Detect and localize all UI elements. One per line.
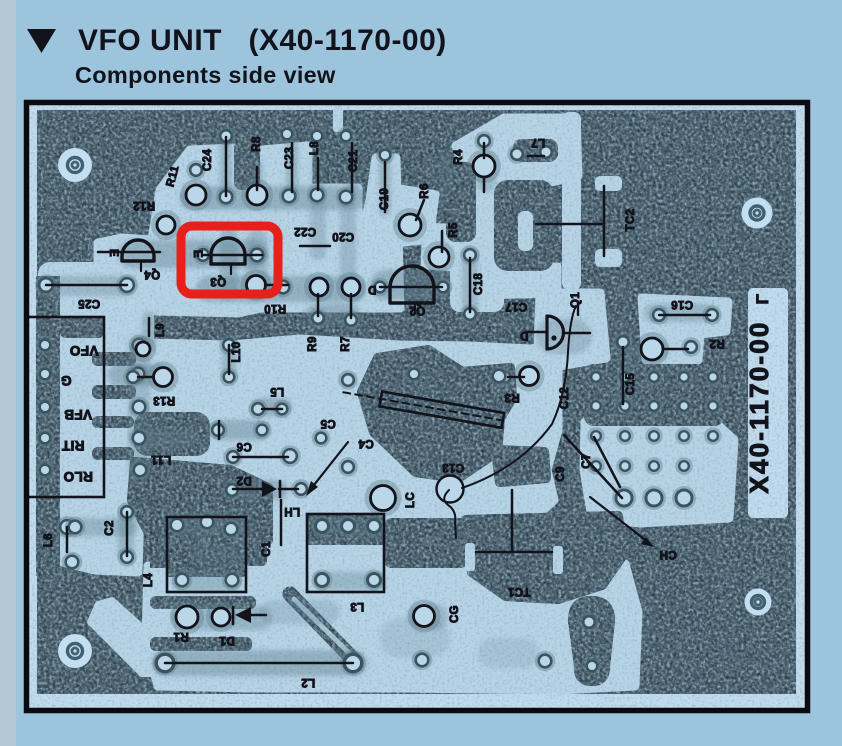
svg-text:C12: C12: [559, 387, 571, 409]
svg-text:VFB: VFB: [64, 407, 92, 422]
svg-text:D: D: [520, 329, 529, 341]
svg-text:R3: R3: [504, 391, 520, 403]
svg-text:R5: R5: [448, 222, 460, 238]
svg-text:Γ: Γ: [753, 294, 772, 305]
svg-text:TC2: TC2: [625, 209, 637, 232]
svg-text:LH: LH: [284, 505, 300, 517]
svg-text:R4: R4: [453, 149, 465, 165]
svg-text:C7: C7: [581, 453, 593, 469]
svg-text:E: E: [107, 249, 119, 257]
svg-text:L3: L3: [350, 600, 364, 612]
svg-text:R10: R10: [264, 302, 286, 314]
svg-text:R9: R9: [307, 336, 319, 352]
svg-text:Q4: Q4: [144, 268, 160, 280]
svg-text:C17: C17: [505, 300, 527, 312]
svg-text:L10: L10: [231, 341, 243, 362]
svg-text:C4: C4: [358, 437, 374, 449]
svg-text:D2: D2: [236, 474, 252, 486]
svg-text:L6: L6: [43, 533, 55, 547]
svg-text:C19: C19: [379, 188, 391, 210]
svg-text:R6: R6: [419, 183, 431, 199]
svg-text:Q2: Q2: [409, 304, 425, 316]
svg-text:G: G: [61, 373, 72, 388]
svg-text:D: D: [368, 283, 377, 295]
svg-text:L7: L7: [531, 136, 545, 148]
svg-text:Q3: Q3: [210, 275, 226, 287]
svg-text:R12: R12: [133, 199, 155, 211]
svg-text:R13: R13: [153, 394, 175, 406]
svg-text:VFO: VFO: [70, 343, 99, 358]
svg-text:R2: R2: [709, 337, 725, 349]
svg-text:C2: C2: [104, 520, 116, 536]
svg-text:C23: C23: [284, 147, 296, 169]
svg-text:C24: C24: [202, 149, 214, 172]
svg-text:C6: C6: [236, 440, 252, 452]
svg-text:L4: L4: [143, 573, 155, 587]
svg-text:R8: R8: [251, 136, 263, 152]
svg-text:C21: C21: [348, 150, 360, 173]
svg-text:L11: L11: [151, 453, 172, 465]
svg-text:L2: L2: [301, 676, 315, 688]
svg-text:C18: C18: [473, 273, 485, 296]
svg-text:C15: C15: [625, 373, 637, 396]
svg-text:C5: C5: [320, 417, 336, 429]
svg-text:VFO UNIT (X40-1170-00): VFO UNIT (X40-1170-00): [78, 24, 447, 57]
svg-text:E: E: [191, 250, 203, 258]
svg-text:RIT: RIT: [61, 438, 84, 453]
svg-text:CH: CH: [659, 548, 676, 560]
svg-text:C16: C16: [671, 298, 693, 310]
svg-text:C1: C1: [261, 541, 273, 557]
svg-text:Components side view: Components side view: [75, 62, 336, 88]
svg-text:C20: C20: [332, 230, 354, 242]
svg-text:X40-1170-00: X40-1170-00: [744, 320, 774, 493]
svg-text:L9: L9: [155, 323, 167, 337]
svg-text:Q1: Q1: [570, 292, 582, 308]
svg-text:CG: CG: [449, 605, 461, 623]
svg-text:TC1: TC1: [507, 585, 530, 597]
svg-text:C25: C25: [78, 297, 101, 309]
svg-text:LC: LC: [405, 492, 417, 508]
svg-text:C9: C9: [555, 466, 567, 482]
svg-text:C13: C13: [442, 461, 464, 473]
svg-text:R1: R1: [173, 630, 189, 642]
svg-text:RLO: RLO: [63, 469, 93, 484]
svg-text:C22: C22: [294, 225, 316, 237]
svg-text:D1: D1: [219, 634, 235, 646]
svg-text:L8: L8: [309, 141, 321, 155]
svg-text:R7: R7: [340, 336, 352, 352]
svg-text:L5: L5: [270, 385, 284, 397]
